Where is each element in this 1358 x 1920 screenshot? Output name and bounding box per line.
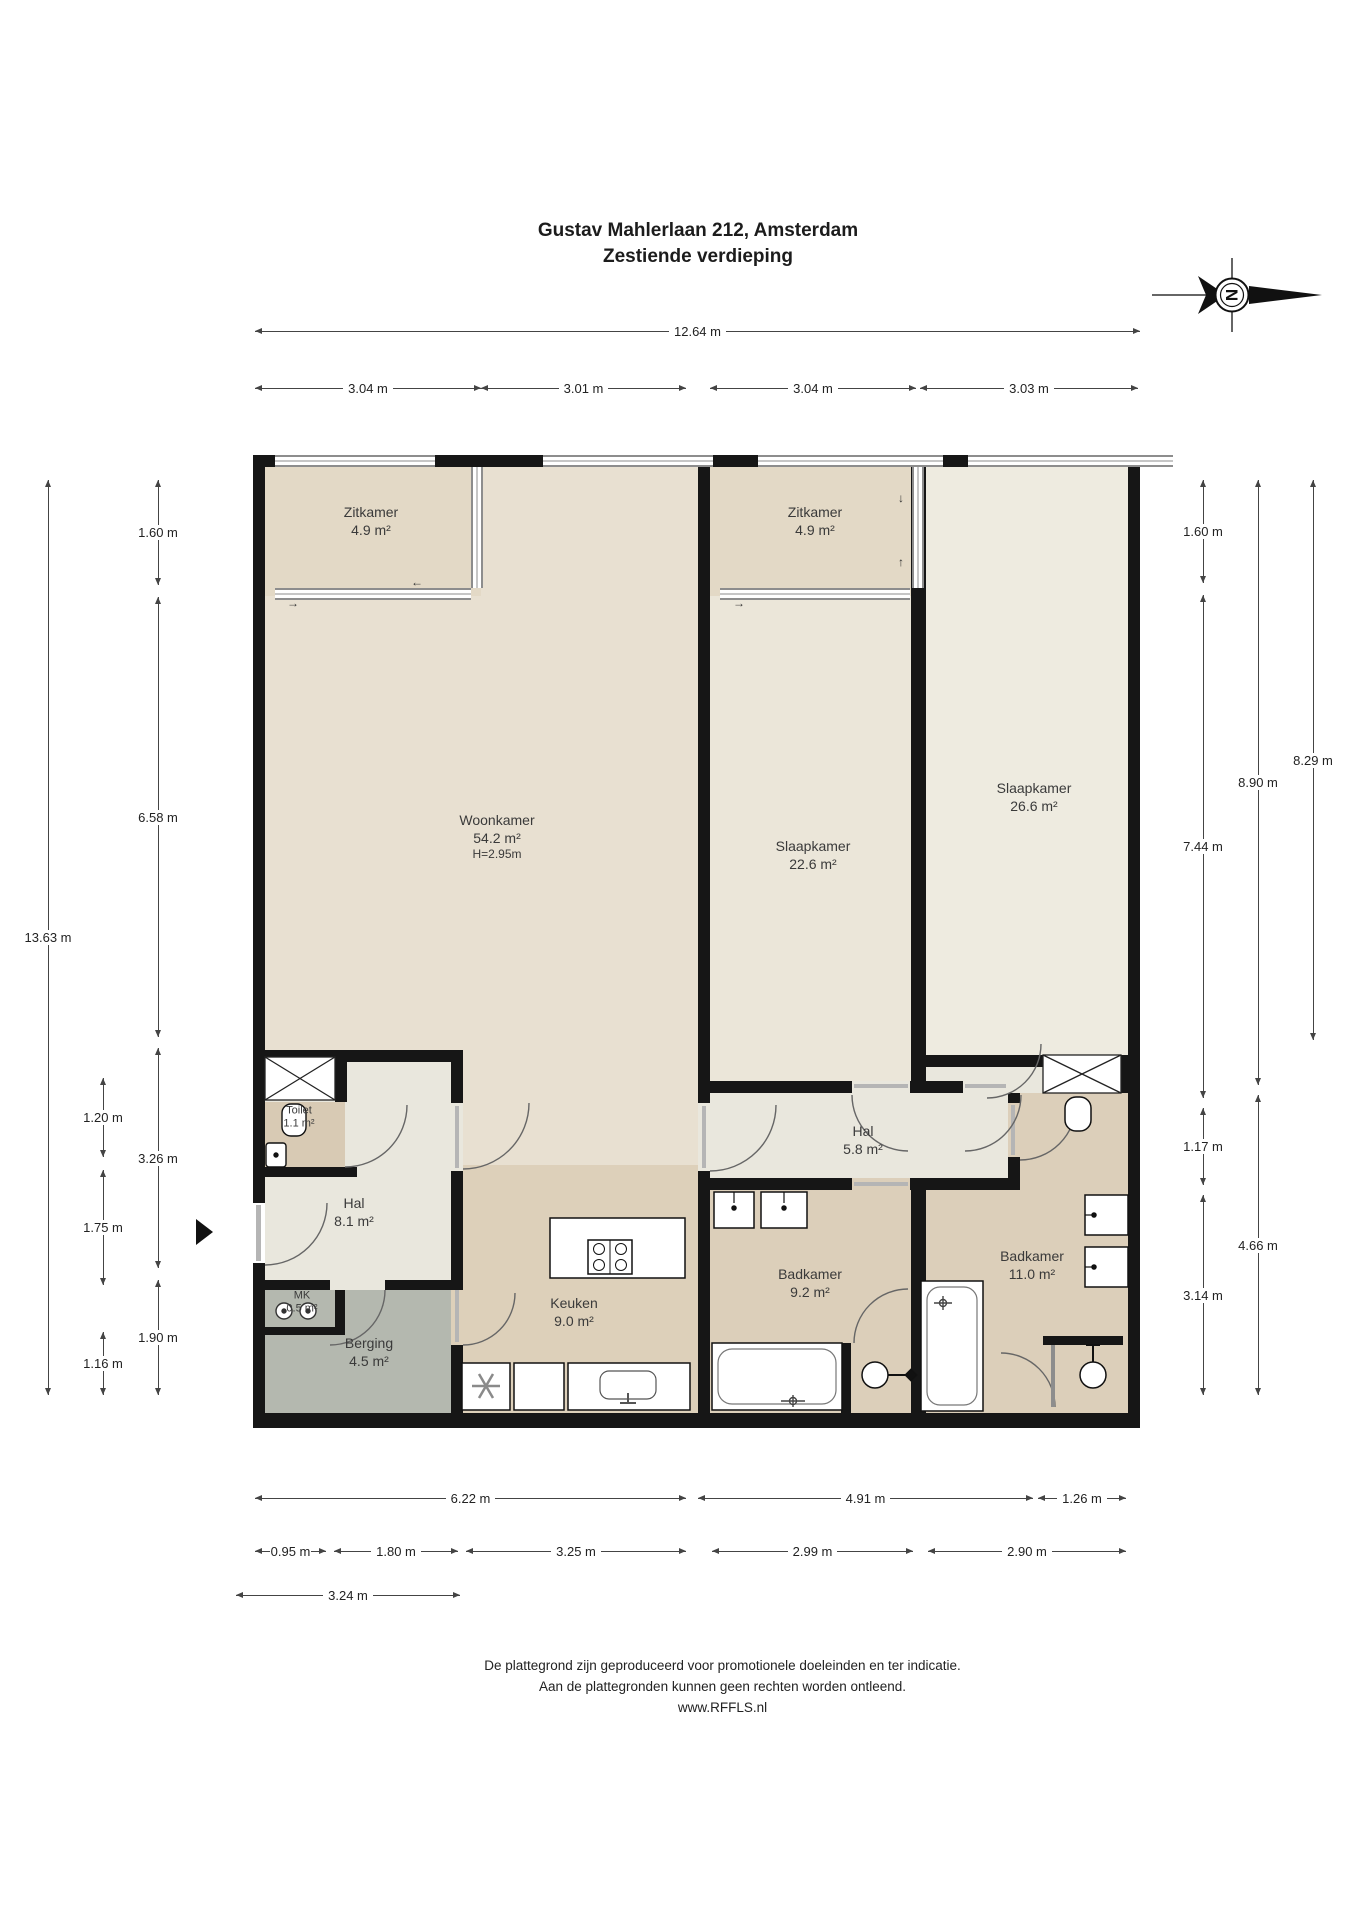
door-arc	[1001, 1353, 1055, 1407]
dim-right1: 3.14 m	[1196, 1195, 1210, 1395]
dim-left2: 1.20 m	[96, 1078, 110, 1157]
dim-bottom1: 6.22 m	[255, 1491, 686, 1505]
footer-url: www.RFFLS.nl	[255, 1698, 1190, 1719]
floorplan: → ← → ↓ ↑ Zitkamer4.9 m² Zitkamer4.9 m² …	[253, 455, 1140, 1428]
shower-valve-icon	[1080, 1362, 1106, 1388]
window-arrow: →	[287, 596, 299, 610]
dim-right1: 1.60 m	[1196, 480, 1210, 583]
room-label-badkamer-1: Badkamer9.2 m²	[778, 1265, 842, 1301]
dim-left2: 1.16 m	[96, 1332, 110, 1395]
cabinet	[514, 1363, 564, 1410]
room-label-hal: Hal8.1 m²	[334, 1194, 374, 1230]
dim-right1: 7.44 m	[1196, 595, 1210, 1098]
shaft-box	[265, 1055, 1121, 1100]
dim-bottom1: 4.91 m	[698, 1491, 1033, 1505]
bathtub	[712, 1343, 842, 1410]
dim-bottom2: 0.95 m	[255, 1544, 326, 1558]
room-label-zitkamer-right: Zitkamer4.9 m²	[788, 503, 842, 539]
bathtub	[921, 1281, 983, 1411]
dim-top-seg: 3.03 m	[920, 381, 1138, 395]
footer-line1: De plattegrond zijn geproduceerd voor pr…	[255, 1656, 1190, 1677]
room-label-zitkamer-left: Zitkamer4.9 m²	[344, 503, 398, 539]
room-label-badkamer-2: Badkamer11.0 m²	[1000, 1247, 1064, 1283]
dim-bottom2: 2.90 m	[928, 1544, 1126, 1558]
floorplan-page: Gustav Mahlerlaan 212, Amsterdam Zestien…	[0, 0, 1358, 1920]
dim-right2: 4.66 m	[1251, 1095, 1265, 1395]
dim-left: 6.58 m	[151, 597, 165, 1037]
dim-left2: 1.75 m	[96, 1170, 110, 1285]
dim-bottom2: 3.25 m	[466, 1544, 686, 1558]
kitchen-island	[550, 1218, 685, 1278]
room-label-slaapkamer-1: Slaapkamer22.6 m²	[776, 837, 851, 873]
window-arrow: ↓	[898, 491, 904, 505]
page-title: Gustav Mahlerlaan 212, Amsterdam Zestien…	[253, 218, 1143, 269]
door-arc	[345, 1105, 407, 1167]
room-label-berging: Berging4.5 m²	[345, 1334, 393, 1370]
dim-right2: 8.90 m	[1251, 480, 1265, 1085]
door-arc	[463, 1293, 515, 1345]
dim-top-seg: 3.04 m	[255, 381, 481, 395]
dim-right3: 8.29 m	[1306, 480, 1320, 1040]
shower-valve-icon	[862, 1362, 888, 1388]
dim-top-seg: 3.01 m	[481, 381, 686, 395]
room-label-keuken: Keuken9.0 m²	[550, 1294, 597, 1330]
door-arc	[987, 1044, 1041, 1098]
dim-left-total: 13.63 m	[41, 480, 55, 1395]
window-arrow: ←	[411, 575, 423, 589]
room-label-woonkamer: Woonkamer54.2 m² H=2.95m	[459, 811, 534, 863]
title-address: Gustav Mahlerlaan 212, Amsterdam	[253, 218, 1143, 244]
dim-right1: 1.17 m	[1196, 1108, 1210, 1185]
compass-icon: N	[1146, 250, 1326, 340]
door-arc	[854, 1289, 908, 1343]
footer-disclaimer: De plattegrond zijn geproduceerd voor pr…	[255, 1656, 1190, 1719]
window-arrow: ↑	[898, 555, 904, 569]
room-label-slaapkamer-2: Slaapkamer26.6 m²	[997, 779, 1072, 815]
dim-bottom1: 1.26 m	[1038, 1491, 1126, 1505]
toilet-icon	[1065, 1097, 1091, 1131]
dim-top-total: 12.64 m	[255, 324, 1140, 338]
dim-left: 3.26 m	[151, 1048, 165, 1268]
room-label-mk: MK0.5 m²	[286, 1289, 317, 1314]
window-arrow: →	[733, 596, 745, 610]
dim-bottom2: 1.80 m	[334, 1544, 458, 1558]
dim-left: 1.90 m	[151, 1280, 165, 1395]
door-arc	[265, 1203, 327, 1265]
title-floor: Zestiende verdieping	[253, 244, 1143, 270]
door-arc	[463, 1103, 529, 1169]
entrance-arrow-icon	[196, 1219, 213, 1245]
dim-top-seg: 3.04 m	[710, 381, 916, 395]
dim-bottom3: 3.24 m	[236, 1588, 460, 1602]
room-label-hal2: Hal5.8 m²	[843, 1122, 883, 1158]
compass-letter: N	[1222, 289, 1241, 301]
room-label-toilet: Toilet1.1 m²	[283, 1104, 314, 1129]
door-arc	[710, 1105, 776, 1171]
dim-bottom2: 2.99 m	[712, 1544, 913, 1558]
dim-left: 1.60 m	[151, 480, 165, 585]
door-arc	[965, 1095, 1021, 1151]
footer-line2: Aan de plattegronden kunnen geen rechten…	[255, 1677, 1190, 1698]
